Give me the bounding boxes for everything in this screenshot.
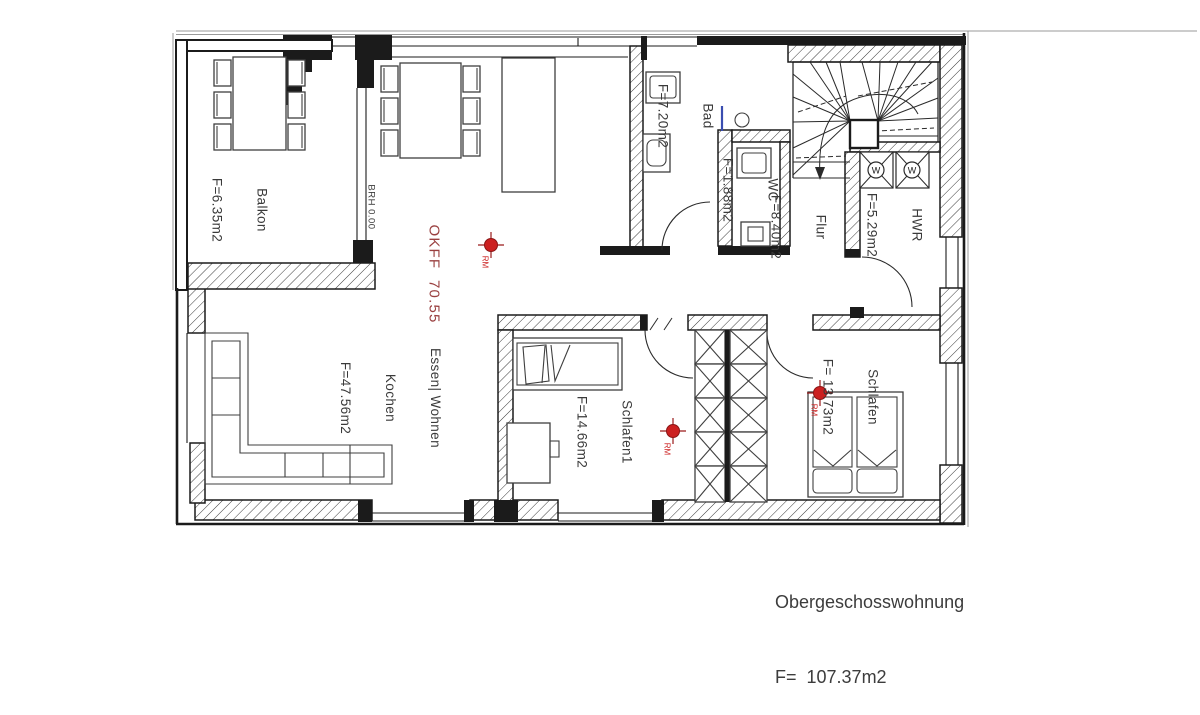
room-name: Schlafen	[866, 359, 881, 435]
rm-tag-schlafen: RM	[807, 404, 822, 416]
stair-newel-post	[850, 120, 878, 148]
schlafen1-door-arc	[645, 330, 693, 378]
room-label-wohnen: Essen| Wohnen Kochen F=47.56m2	[323, 348, 473, 448]
washer-1-letter: W	[872, 166, 881, 176]
room-label-balkon: Balkon F=6.35m2	[195, 178, 300, 242]
room-area: F=8.40m2	[769, 195, 784, 259]
kitchen-counter	[502, 58, 555, 192]
footer-title: Obergeschosswohnung	[775, 590, 964, 615]
balcony-furniture	[214, 57, 305, 150]
room-area: F=47.56m2	[338, 348, 353, 448]
room-label-schlafen1: Schlafen1 F=14.66m2	[560, 396, 665, 468]
room-name: HWR	[910, 193, 925, 257]
room-name: Balkon	[255, 178, 270, 242]
plan-footer: Obergeschosswohnung F= 107.37m2	[775, 540, 964, 715]
bad-door-arc	[662, 202, 710, 250]
footer-area: F= 107.37m2	[775, 665, 964, 690]
room-name-2: Kochen	[383, 348, 398, 448]
annotation-okff-level: OKFF 70.55	[427, 224, 442, 323]
room-label-hwr: HWR F=5.29m2	[850, 193, 955, 257]
room-area: F=14.66m2	[575, 396, 590, 468]
room-area: F=7.20m2	[656, 84, 671, 148]
annotation-brh-sill: BRH 0.00	[364, 184, 379, 229]
dining-table	[400, 63, 461, 158]
room-name: Schlafen1	[620, 396, 635, 468]
washing-machines: W W	[860, 152, 929, 188]
smoke-detector-living	[478, 232, 504, 258]
desk	[507, 423, 550, 483]
floorplan-page: W W	[0, 0, 1200, 600]
rm-tag-schlafen1: RM	[660, 443, 675, 455]
room-label-bad: Bad F=7.20m2	[641, 84, 746, 148]
hwr-door-arc	[862, 257, 912, 307]
rm-tag-living: RM	[478, 256, 493, 268]
room-area: F=6.35m2	[210, 178, 225, 242]
washer-2-letter: W	[908, 166, 917, 176]
room-name: Essen| Wohnen	[428, 348, 443, 448]
room-area: F= 13.73m2	[821, 359, 836, 435]
room-name: Flur	[814, 195, 829, 259]
room-name: Bad	[701, 84, 716, 148]
floorplan-drawing: W W	[0, 0, 1200, 600]
wardrobes	[695, 330, 767, 502]
room-area: F=5.29m2	[865, 193, 880, 257]
room-label-flur: Flur F=8.40m2	[754, 195, 859, 259]
room-area: F=1.88m2	[721, 158, 736, 222]
single-bed	[513, 338, 622, 390]
room-label-schlafen: Schlafen F= 13.73m2	[806, 359, 911, 435]
balcony-table	[233, 57, 286, 150]
